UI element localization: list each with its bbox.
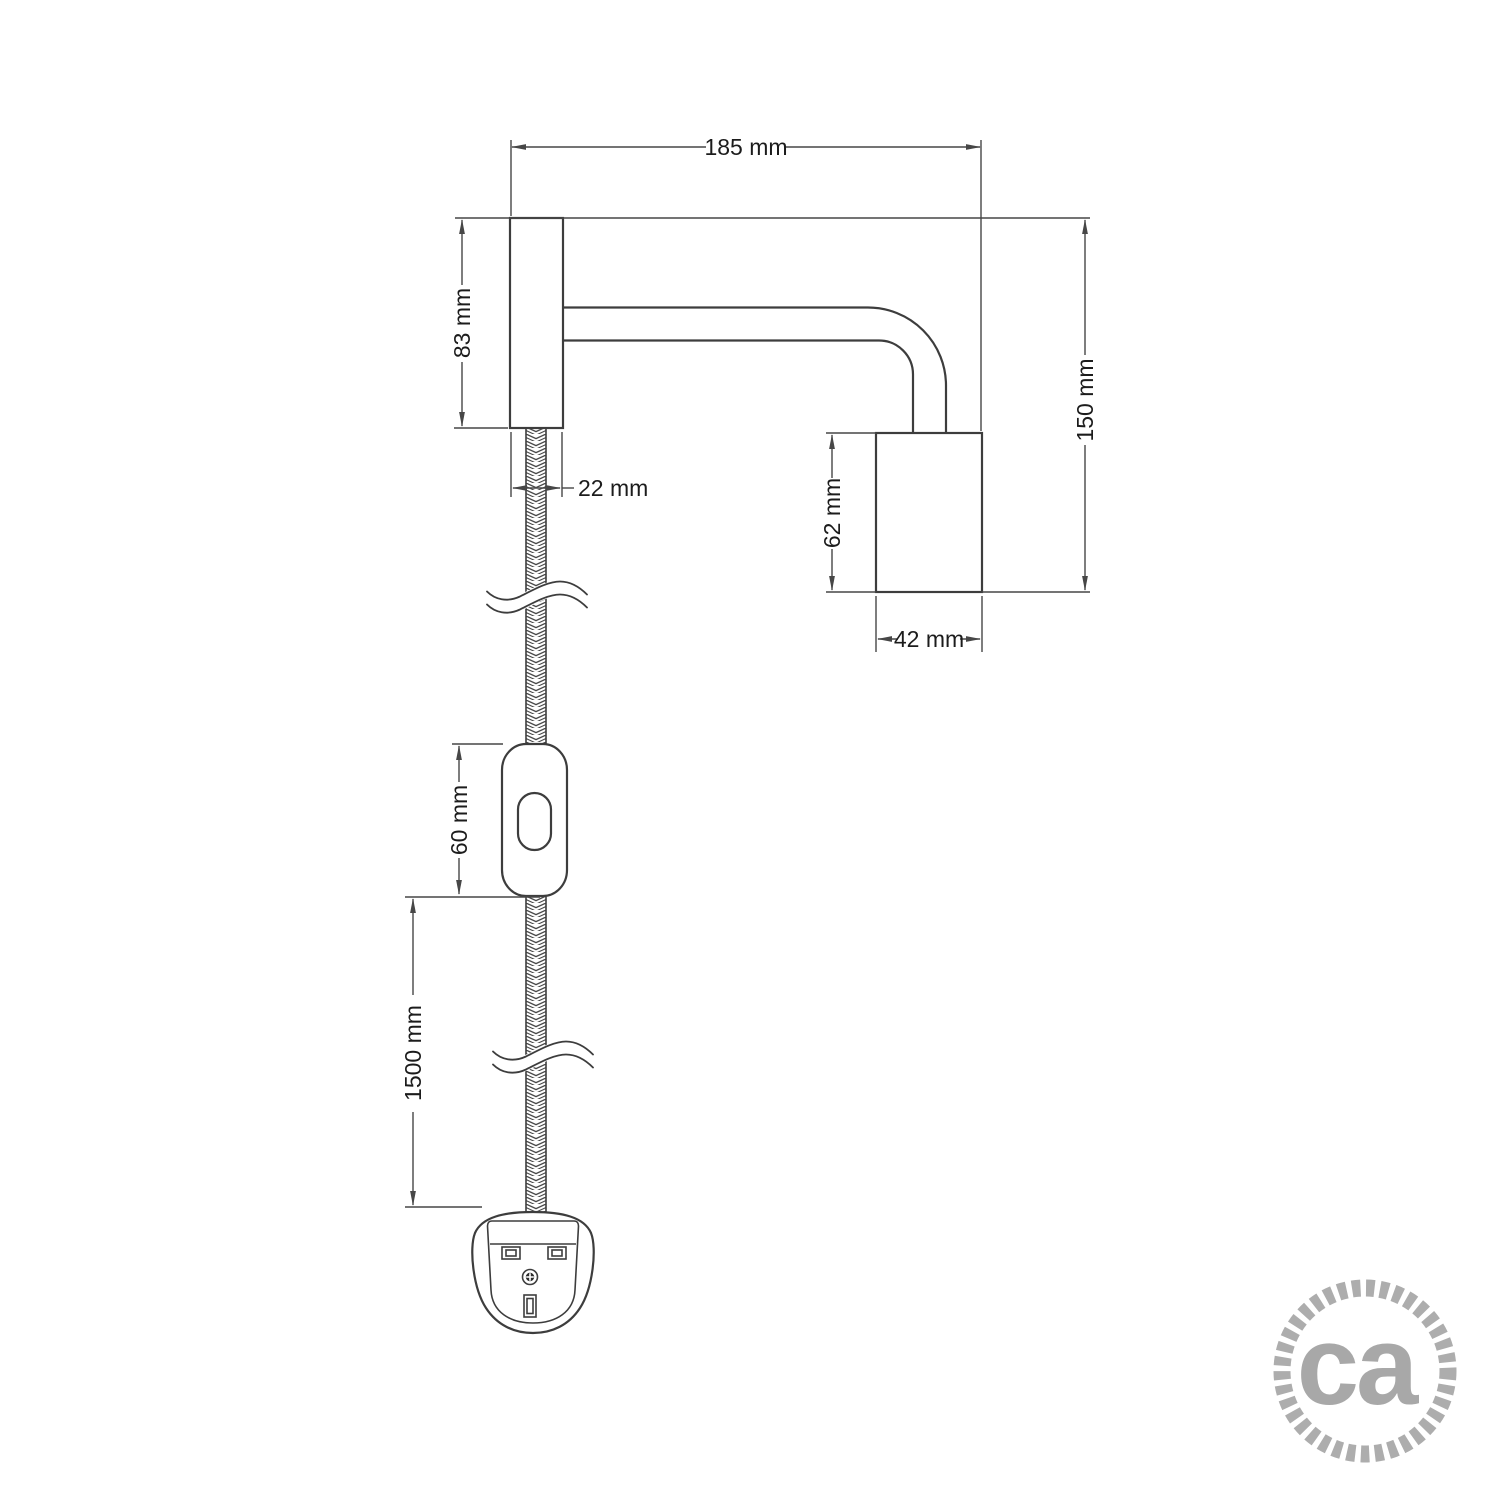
dimension-label-overall-height: 150 mm: [1072, 358, 1098, 441]
lamp-holder: [876, 433, 982, 592]
power-plug: [472, 1212, 593, 1333]
wall-plate: [510, 218, 563, 428]
dimension-label-cable-length: 1500 mm: [400, 1005, 426, 1101]
logo-text: ca: [1297, 1303, 1419, 1428]
lamp-dimension-diagram: 185 mm 83 mm 22 mm 150 mm 62 mm 42 mm 60…: [0, 0, 1500, 1500]
technical-drawing-canvas: 185 mm 83 mm 22 mm 150 mm 62 mm 42 mm 60…: [0, 0, 1500, 1500]
dimension-label-wall-plate-height: 83 mm: [449, 288, 475, 358]
dimension-label-arm-length: 185 mm: [704, 134, 787, 160]
dimension-label-lamp-holder-height: 62 mm: [819, 478, 845, 548]
background: [0, 0, 1500, 1500]
dimension-label-wall-plate-width: 22 mm: [578, 475, 648, 501]
dimension-label-switch-length: 60 mm: [446, 785, 472, 855]
dimension-label-lamp-holder-width: 42 mm: [894, 626, 964, 652]
inline-switch: [502, 744, 567, 896]
